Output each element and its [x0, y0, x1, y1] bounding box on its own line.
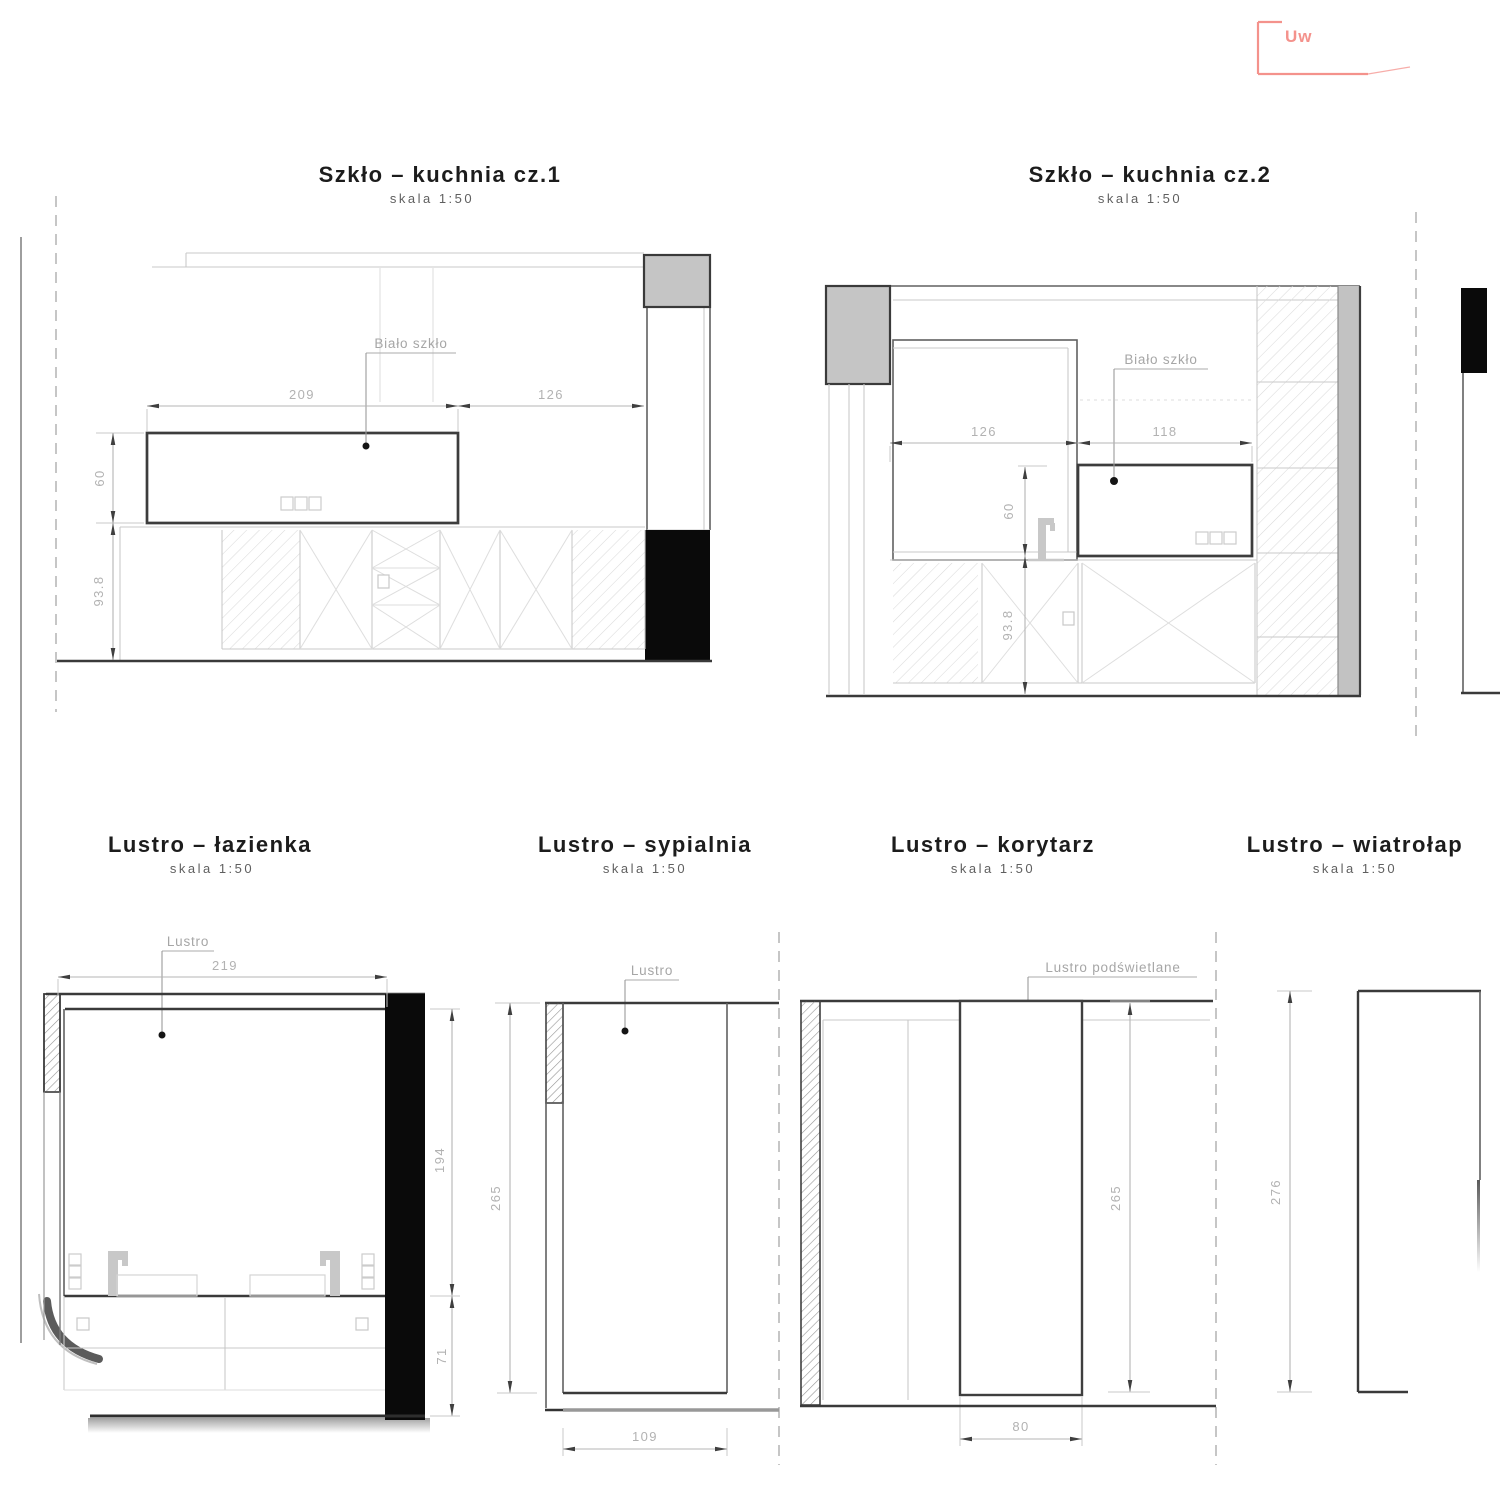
- cabinet-black-panel: [645, 530, 710, 662]
- cabinet-handle: [1063, 612, 1074, 625]
- hatched-wall-section: [546, 1003, 563, 1103]
- power-socket-icon: [1196, 532, 1236, 544]
- drawing-scale: skala 1:50: [170, 861, 254, 876]
- dim-text: 194: [432, 1147, 447, 1173]
- dim-text: 209: [289, 387, 315, 402]
- mirror-panel: [960, 1001, 1082, 1395]
- leader-dot: [363, 443, 370, 450]
- dim-text: 276: [1268, 1179, 1283, 1205]
- dim-text: 93.8: [1000, 610, 1015, 641]
- dim-text: 60: [92, 469, 107, 486]
- mirror-label: Lustro podświetlane: [1045, 960, 1180, 975]
- leader-dot: [1110, 477, 1118, 485]
- hatched-wall-section: [801, 1001, 820, 1405]
- leader-dot: [622, 1028, 629, 1035]
- cabinet-top-gray-panel: [644, 255, 710, 307]
- power-socket-icon: [69, 1254, 81, 1289]
- dim-text: 93.8: [91, 576, 106, 607]
- dim-text: 118: [1153, 424, 1178, 439]
- cabinet-handle: [77, 1318, 89, 1330]
- dim-text: 265: [1108, 1185, 1123, 1211]
- drawing-title: Lustro – wiatrołap: [1247, 832, 1463, 857]
- drawing-scale: skala 1:50: [390, 191, 474, 206]
- drawing-title: Lustro – sypialnia: [538, 832, 752, 857]
- mirror-right-edge-fade: [1477, 1180, 1480, 1272]
- cad-drawing-canvas: Uw Szkło – kuchnia cz.1 skala 1:50: [0, 0, 1500, 1500]
- sheet: Uw Szkło – kuchnia cz.1 skala 1:50: [0, 0, 1500, 1500]
- drawing-scale: skala 1:50: [1313, 861, 1397, 876]
- dim-text: 126: [538, 387, 564, 402]
- drawing-scale: skala 1:50: [1098, 191, 1182, 206]
- leader-dot: [159, 1032, 166, 1039]
- drawing-title: Lustro – korytarz: [891, 832, 1095, 857]
- stamp-text: Uw: [1285, 27, 1313, 46]
- gray-column-strip: [1338, 286, 1360, 695]
- drawing-title: Szkło – kuchnia cz.1: [319, 162, 562, 187]
- mirror-label: Lustro: [631, 963, 673, 978]
- power-socket-icon: [281, 497, 321, 510]
- dim-text: 265: [488, 1185, 503, 1211]
- cabinet-handle: [378, 575, 389, 588]
- page-background: [0, 0, 1500, 1500]
- right-hatched-wall: [1257, 286, 1360, 695]
- power-socket-icon: [362, 1254, 374, 1289]
- glass-label: Biało szkło: [374, 336, 447, 351]
- hatched-panel: [572, 530, 645, 649]
- mirror-label: Lustro: [167, 934, 209, 949]
- dim-text: 219: [212, 958, 238, 973]
- hatched-panel: [222, 530, 300, 649]
- cabinet-black-panel: [1461, 288, 1487, 373]
- hatched-wall-section: [44, 994, 60, 1092]
- page-bottom-shadow: [88, 1418, 430, 1433]
- dim-text: 126: [971, 424, 997, 439]
- cabinet-top-gray-panel: [826, 286, 890, 384]
- dim-text: 71: [434, 1347, 449, 1364]
- dim-text: 80: [1012, 1419, 1029, 1434]
- drawing-scale: skala 1:50: [603, 861, 687, 876]
- black-column: [385, 994, 425, 1420]
- dim-text: 109: [632, 1429, 658, 1444]
- drawing-scale: skala 1:50: [951, 861, 1035, 876]
- cabinet-handle: [356, 1318, 368, 1330]
- glass-label: Biało szkło: [1124, 352, 1197, 367]
- dim-text: 60: [1001, 502, 1016, 519]
- drawing-title: Szkło – kuchnia cz.2: [1029, 162, 1272, 187]
- hatched-panel: [893, 563, 978, 683]
- drawing-title: Lustro – łazienka: [108, 832, 312, 857]
